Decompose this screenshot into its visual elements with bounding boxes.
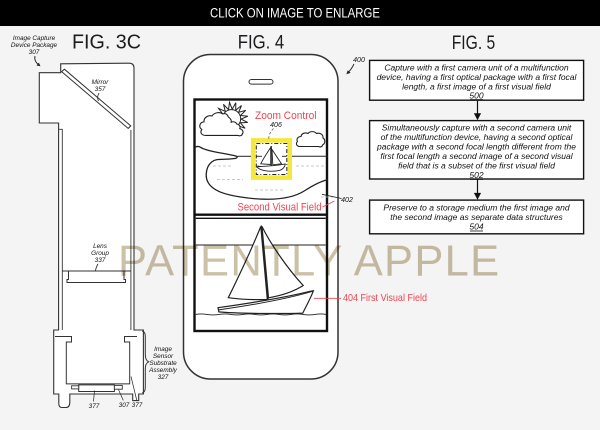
svg-text:of the multifunction device, h: of the multifunction device, having a se… xyxy=(381,132,574,142)
svg-text:307: 307 xyxy=(119,402,130,409)
svg-text:377: 377 xyxy=(89,403,100,410)
svg-text:Zoom Control: Zoom Control xyxy=(255,110,317,122)
svg-text:Mirror: Mirror xyxy=(92,79,110,86)
svg-text:Lens: Lens xyxy=(93,243,108,250)
svg-text:first focal length a second im: first focal length a second image of a s… xyxy=(380,151,573,161)
svg-text:500: 500 xyxy=(469,90,483,100)
svg-text:400: 400 xyxy=(353,57,365,64)
svg-text:307: 307 xyxy=(29,49,40,56)
svg-text:327: 327 xyxy=(158,374,169,381)
svg-text:502: 502 xyxy=(469,170,483,180)
svg-text:377: 377 xyxy=(132,402,143,409)
svg-text:404 First Visual Field: 404 First Visual Field xyxy=(343,292,427,304)
svg-text:FIG. 3C: FIG. 3C xyxy=(72,32,141,54)
svg-text:Sensor: Sensor xyxy=(153,353,174,360)
svg-text:Assembly: Assembly xyxy=(148,367,178,374)
svg-text:FIG. 5: FIG. 5 xyxy=(452,32,496,54)
svg-text:device, having a first optical: device, having a first optical package w… xyxy=(377,72,578,82)
svg-text:CLICK ON IMAGE TO ENLARGE: CLICK ON IMAGE TO ENLARGE xyxy=(210,6,380,21)
svg-text:402: 402 xyxy=(341,197,353,204)
svg-text:Image Capture: Image Capture xyxy=(13,35,56,42)
svg-text:Group: Group xyxy=(91,250,109,257)
svg-text:the second image as separate d: the second image as separate data struct… xyxy=(390,212,563,222)
svg-text:504: 504 xyxy=(469,222,483,232)
svg-text:PATENTLY APPLE: PATENTLY APPLE xyxy=(118,238,500,286)
svg-text:FIG. 4: FIG. 4 xyxy=(238,32,285,54)
svg-text:Preserve to a storage medium t: Preserve to a storage medium the first i… xyxy=(383,203,569,213)
svg-text:357: 357 xyxy=(95,86,106,93)
svg-text:Device Package: Device Package xyxy=(11,42,58,49)
svg-text:406: 406 xyxy=(270,122,282,129)
svg-text:Image: Image xyxy=(154,346,172,353)
svg-text:package with a second focal le: package with a second focal length diffe… xyxy=(376,142,576,152)
svg-text:Simultaneously capture with a: Simultaneously capture with a second cam… xyxy=(382,123,572,133)
svg-text:337: 337 xyxy=(95,257,106,264)
svg-text:Substrate: Substrate xyxy=(149,360,177,367)
svg-text:Second Visual Field: Second Visual Field xyxy=(238,202,322,214)
svg-text:Capture with a first camera un: Capture with a first camera unit of a mu… xyxy=(384,63,569,73)
